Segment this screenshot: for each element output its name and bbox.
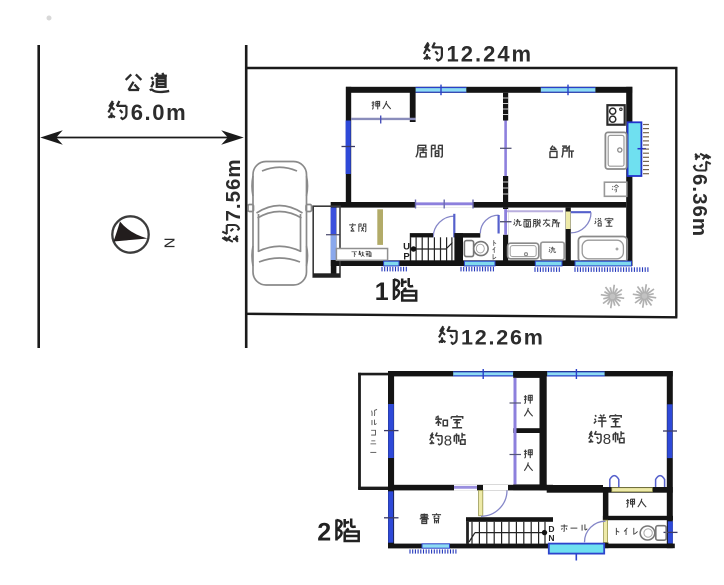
svg-text:6.0m: 6.0m [131, 100, 188, 125]
svg-text:1: 1 [375, 278, 393, 306]
svg-text:8: 8 [444, 432, 452, 449]
svg-text:2: 2 [317, 519, 335, 547]
svg-text:8: 8 [603, 431, 611, 448]
svg-text:12.24m: 12.24m [447, 41, 534, 66]
svg-text:7.56m: 7.56m [222, 158, 245, 221]
svg-text:6.36m: 6.36m [688, 174, 711, 237]
svg-text:P: P [403, 252, 410, 263]
svg-text:12.26m: 12.26m [461, 326, 545, 350]
svg-text:N: N [548, 533, 554, 543]
svg-text:N: N [161, 238, 178, 249]
